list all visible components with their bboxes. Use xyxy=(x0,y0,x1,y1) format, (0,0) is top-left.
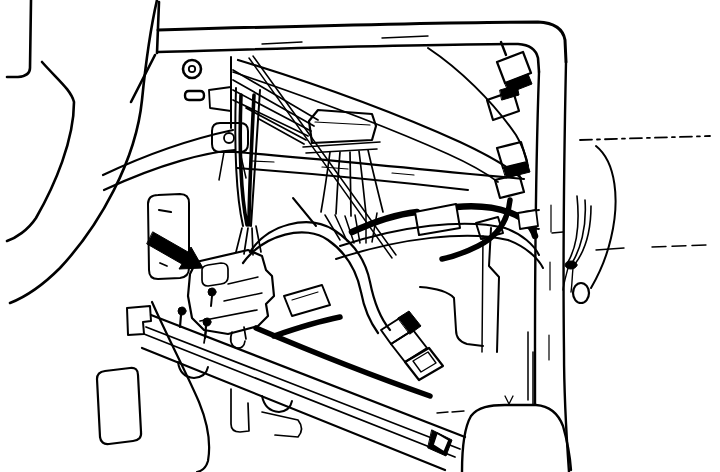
rail-stud-1-stem xyxy=(180,315,181,327)
rail-stud-2-stem xyxy=(205,326,206,338)
rail-stud-2 xyxy=(203,318,211,326)
heater-inner-vertical xyxy=(482,236,483,352)
illustration-stage: Under-dash wiring harness and connector … xyxy=(0,0,720,472)
pillar-wire-tick xyxy=(552,232,563,233)
harness-tape-end-clip xyxy=(518,210,538,229)
main-connector-pin xyxy=(208,288,216,296)
pillar-wire-knot xyxy=(565,261,577,269)
rail-stud-1 xyxy=(178,307,186,315)
underdash-wiring-illustration: Under-dash wiring harness and connector … xyxy=(0,0,720,472)
main-connector-pin-stem xyxy=(211,296,212,306)
